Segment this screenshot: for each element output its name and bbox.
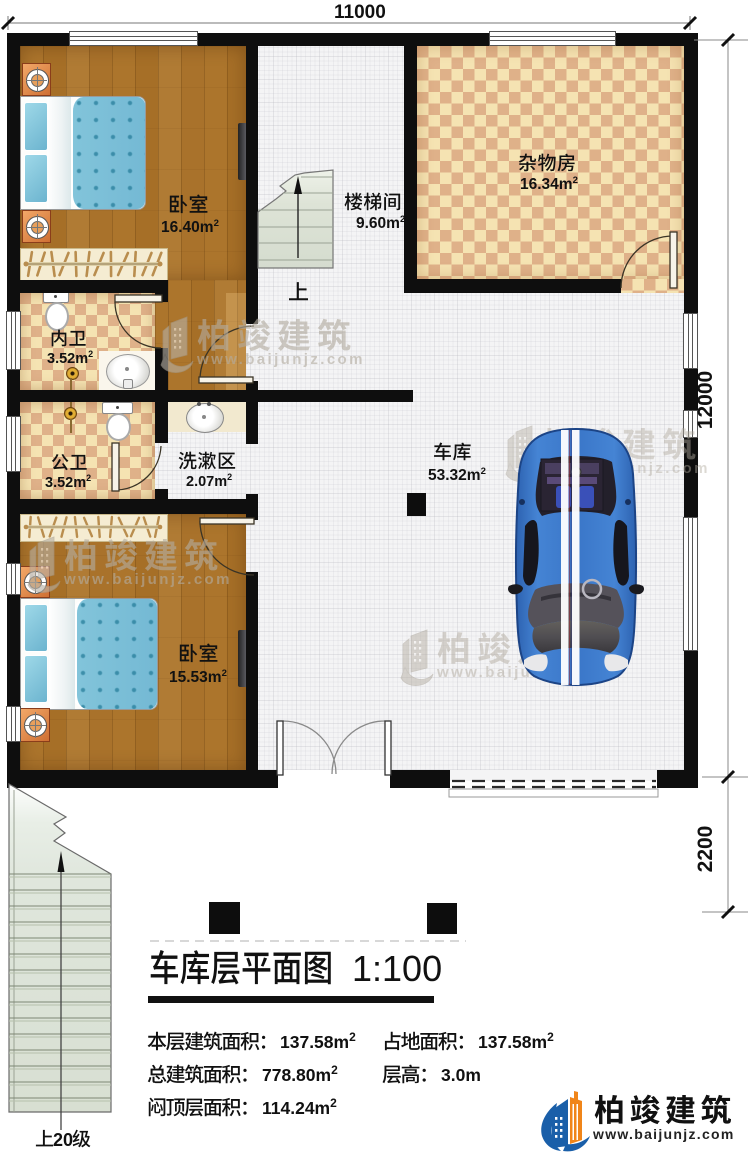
svg-text:114.24m2: 114.24m2: [262, 1096, 337, 1118]
svg-text:12000: 12000: [694, 371, 717, 429]
svg-text:www.baijunjz.com: www.baijunjz.com: [196, 351, 365, 368]
svg-text:137.58m2: 137.58m2: [478, 1030, 554, 1052]
svg-text:137.58m2: 137.58m2: [280, 1030, 356, 1052]
svg-text:3.0m: 3.0m: [441, 1065, 481, 1085]
svg-text:778.80m2: 778.80m2: [262, 1063, 338, 1085]
svg-text:1:100: 1:100: [352, 948, 442, 989]
svg-text:www.baijunjz.com: www.baijunjz.com: [592, 1126, 735, 1142]
svg-text:www.baijunjz.com: www.baijunjz.com: [63, 571, 232, 588]
svg-text:20: 20: [53, 1130, 73, 1150]
svg-text:2200: 2200: [694, 826, 717, 873]
